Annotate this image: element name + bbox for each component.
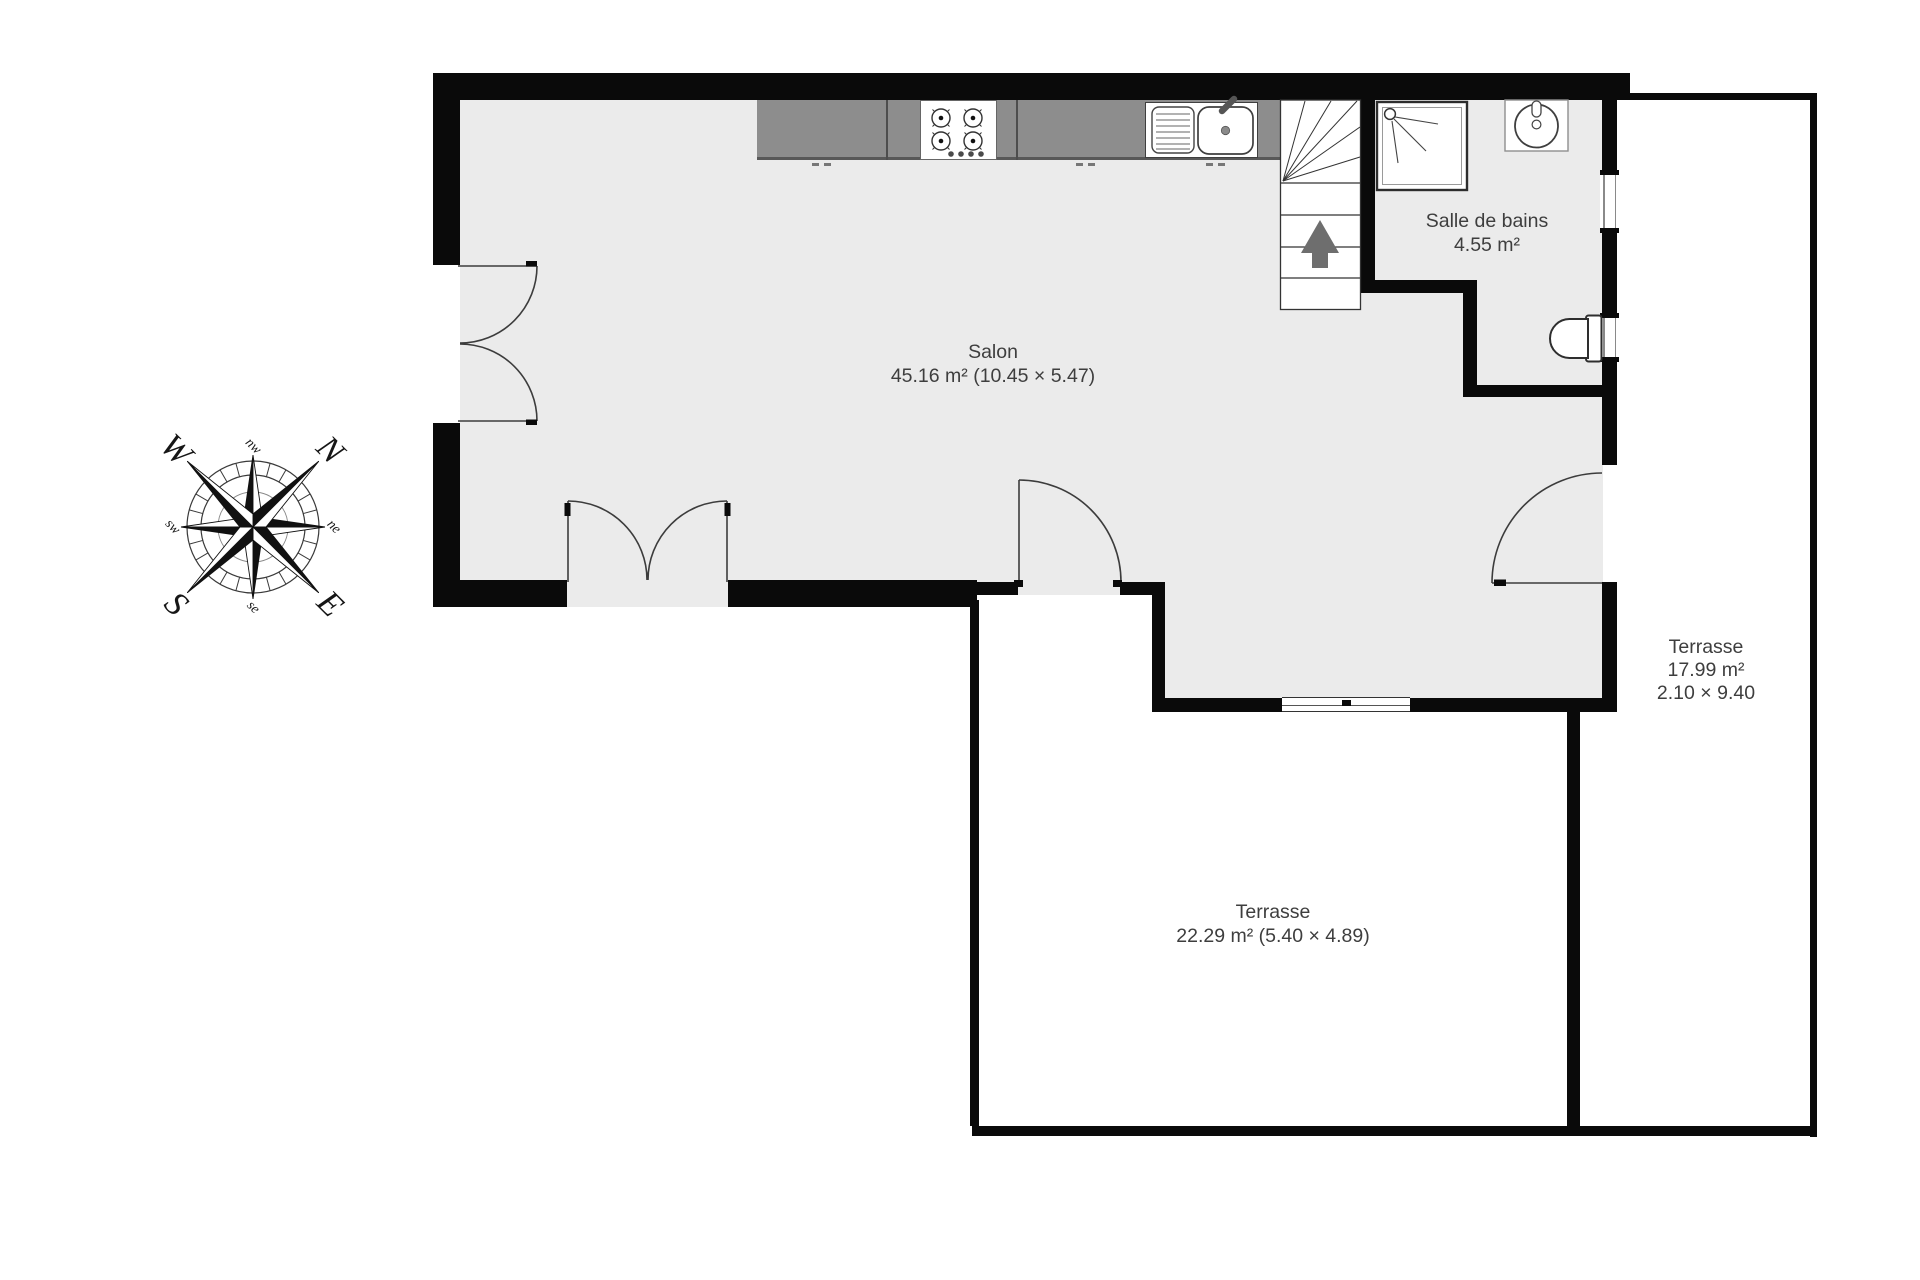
- stove-module: [920, 100, 997, 160]
- compass-north-label: N: [308, 428, 353, 473]
- room-dims: 2.10 × 9.40: [1616, 682, 1796, 705]
- window-bathroom: [1600, 170, 1619, 233]
- room-area: 4.55 m²: [1377, 233, 1597, 257]
- wall-right-1: [1602, 93, 1617, 170]
- wall-right-4: [1602, 582, 1617, 700]
- compass-nw-label: nw: [242, 435, 265, 458]
- sink-module: [1145, 102, 1258, 158]
- window-glass: [1603, 175, 1605, 228]
- counter-divider: [886, 100, 888, 160]
- compass-ring-tick: [196, 491, 208, 503]
- window-frame: [1342, 700, 1351, 706]
- compass-rose-icon: N E S W ne se sw nw: [76, 350, 428, 702]
- window-wc: [1600, 313, 1619, 362]
- compass-ring-tick: [187, 520, 201, 534]
- cabinet-mark: [1218, 163, 1225, 166]
- wall-bottom-left-b: [728, 580, 977, 607]
- compass-ring-tick: [276, 572, 288, 584]
- compass-ring-tick: [261, 463, 275, 477]
- compass-ring-tick: [217, 470, 229, 482]
- compass-ring-tick: [231, 577, 245, 591]
- wall-bathroom-south: [1360, 280, 1477, 293]
- compass-west-label: W: [153, 427, 201, 475]
- compass-ring-tick: [206, 564, 216, 574]
- compass-east-label: E: [309, 583, 351, 625]
- wall-terrace-top-b: [1120, 582, 1165, 595]
- room-area: 17.99 m²: [1616, 659, 1796, 682]
- wall-wc-west: [1463, 280, 1477, 397]
- window-frame: [1600, 357, 1619, 362]
- window-glass: [1615, 318, 1617, 357]
- room-area: 22.29 m² (5.40 × 4.89): [1023, 924, 1523, 948]
- cabinet-mark: [1206, 163, 1213, 166]
- compass-ring-tick: [206, 480, 216, 490]
- wall-extension-bottom-b: [1410, 698, 1617, 712]
- compass-star: [121, 395, 384, 658]
- cabinet-mark: [824, 163, 831, 166]
- salon-label: Salon 45.16 m² (10.45 × 5.47): [743, 340, 1243, 388]
- wall-terrace-divider: [1567, 698, 1580, 1136]
- window-frame: [1600, 228, 1619, 233]
- wall-bottom-left-a: [433, 580, 567, 607]
- compass-ring-tick: [246, 579, 260, 593]
- compass-ring-tick: [261, 577, 275, 591]
- compass-south-label: S: [157, 585, 195, 623]
- wall-extension-bottom-a: [1152, 698, 1282, 712]
- cabinet-mark: [1076, 163, 1083, 166]
- counter-divider: [1016, 100, 1018, 160]
- compass-ring-tick: [305, 520, 319, 534]
- compass-se-label: se: [244, 598, 263, 617]
- wall-bathroom-west: [1360, 100, 1375, 293]
- terrace-right-border-top: [1617, 93, 1817, 100]
- compass-ring-tick: [189, 535, 203, 549]
- staircase-area: [1280, 100, 1361, 310]
- compass-ne-label: ne: [324, 517, 344, 537]
- compass-ring-tick: [290, 564, 300, 574]
- wall-extension-left: [1152, 595, 1165, 712]
- cabinet-mark: [812, 163, 819, 166]
- compass-ring-tick: [217, 572, 229, 584]
- compass-ring-tick: [298, 491, 310, 503]
- room-area: 45.16 m² (10.45 × 5.47): [743, 364, 1243, 388]
- door-threshold: [567, 580, 728, 607]
- wall-terrace-top-a: [977, 582, 1018, 595]
- room-name: Terrasse: [1023, 900, 1523, 924]
- bathroom-label: Salle de bains 4.55 m²: [1377, 209, 1597, 257]
- compass-ring-tick: [196, 550, 208, 562]
- terrace-right-label: Terrasse 17.99 m² 2.10 × 9.40: [1616, 636, 1796, 705]
- compass-ring-tick: [246, 461, 260, 475]
- wall-right-2: [1602, 233, 1617, 313]
- room-name: Salon: [743, 340, 1243, 364]
- wall-left-upper: [433, 73, 460, 265]
- compass-ring-tick: [290, 480, 300, 490]
- wall-top: [433, 73, 1630, 100]
- terrace-bottom-border-left: [970, 600, 979, 1126]
- wall-wc-south: [1477, 385, 1602, 397]
- sliding-window-salon: [1282, 697, 1410, 712]
- salon-floor-extension: [1165, 582, 1602, 700]
- room-name: Salle de bains: [1377, 209, 1597, 233]
- terrace-border-bottom: [972, 1126, 1817, 1136]
- compass-ring-tick: [189, 505, 203, 519]
- window-glass: [1603, 318, 1605, 357]
- terrace-right-border-right: [1810, 93, 1817, 1137]
- wall-right-3: [1602, 362, 1617, 465]
- compass-ring-tick: [303, 505, 317, 519]
- window-glass: [1615, 175, 1617, 228]
- compass-sw-label: sw: [162, 516, 184, 538]
- room-name: Terrasse: [1616, 636, 1796, 659]
- compass-ring-tick: [276, 470, 288, 482]
- terrace-bottom-label: Terrasse 22.29 m² (5.40 × 4.89): [1023, 900, 1523, 948]
- compass-ring-tick: [231, 463, 245, 477]
- door-threshold: [1018, 582, 1120, 595]
- compass-ring-tick: [303, 535, 317, 549]
- cabinet-mark: [1088, 163, 1095, 166]
- floor-plan: Salon 45.16 m² (10.45 × 5.47) Salle de b…: [0, 0, 1920, 1280]
- compass-ring-tick: [298, 550, 310, 562]
